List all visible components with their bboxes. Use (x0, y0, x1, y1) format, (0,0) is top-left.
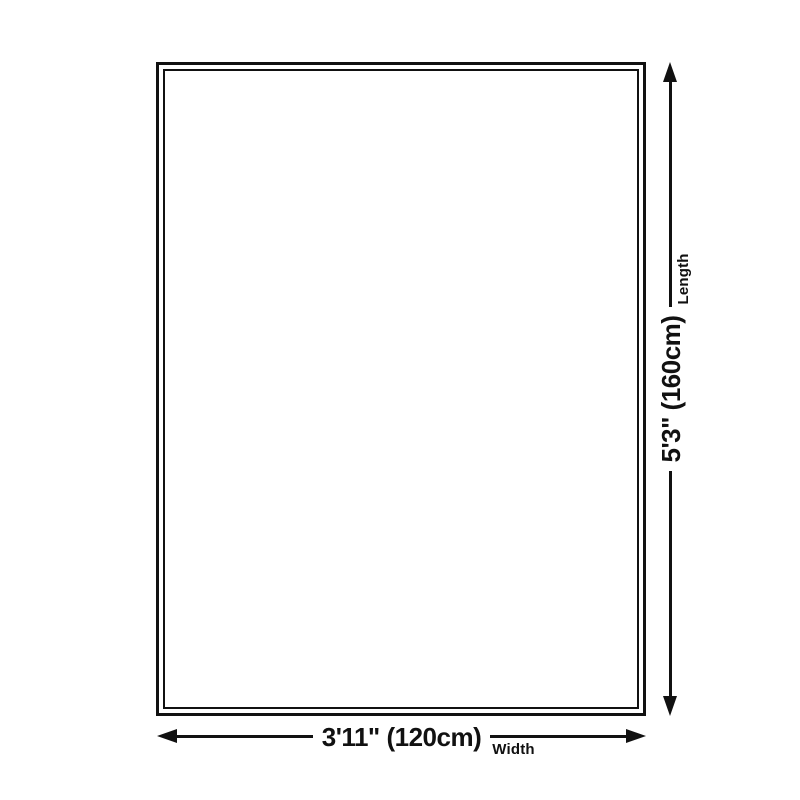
width-label: Width (492, 742, 535, 757)
arrow-left-icon (157, 729, 177, 743)
length-dimension-line-bottom (669, 471, 672, 696)
length-value: 5'3" (160cm) (658, 307, 684, 472)
dimension-diagram: 3'11" (120cm) Width 5'3" (160cm) Length (0, 0, 800, 800)
length-label: Length (676, 253, 691, 304)
rug-outline (156, 62, 646, 716)
arrow-right-icon (626, 729, 646, 743)
width-dimension-arrow: 3'11" (120cm) Width (157, 714, 646, 758)
width-dimension-line-right: Width (490, 735, 626, 738)
arrow-down-icon (663, 696, 677, 716)
length-dimension-line-top: Length (669, 82, 672, 307)
width-value: 3'11" (120cm) (313, 724, 490, 750)
length-dimension-arrow: 5'3" (160cm) Length (648, 62, 692, 716)
rug-inner-border (163, 69, 639, 709)
arrow-up-icon (663, 62, 677, 82)
width-dimension-line-left (177, 735, 313, 738)
